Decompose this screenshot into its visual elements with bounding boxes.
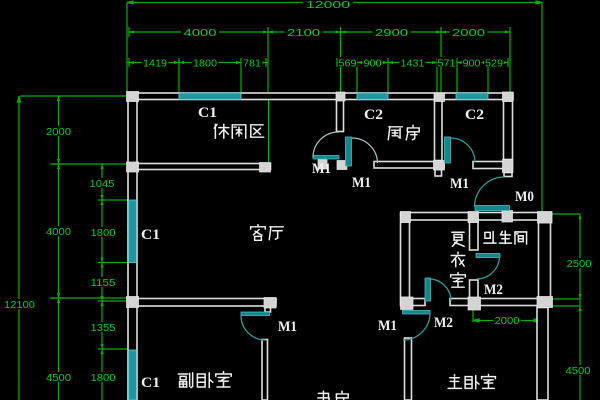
svg-text:1155: 1155	[91, 278, 116, 289]
svg-text:4000: 4000	[46, 227, 71, 238]
svg-text:1800: 1800	[91, 228, 116, 239]
svg-text:1355: 1355	[91, 323, 116, 334]
svg-text:569: 569	[339, 59, 357, 70]
svg-text:C1: C1	[198, 105, 217, 121]
svg-text:781: 781	[243, 59, 261, 70]
svg-text:1800: 1800	[91, 373, 116, 384]
svg-text:M0: M0	[515, 189, 534, 205]
svg-text:M1: M1	[312, 161, 331, 177]
svg-text:4000: 4000	[184, 28, 218, 39]
svg-text:2100: 2100	[287, 28, 321, 39]
svg-text:2500: 2500	[567, 259, 592, 270]
svg-text:1800: 1800	[193, 59, 217, 70]
svg-text:529: 529	[485, 59, 503, 70]
svg-text:900: 900	[463, 59, 481, 70]
svg-text:M2: M2	[434, 315, 453, 331]
svg-text:12000: 12000	[306, 0, 351, 11]
svg-text:4500: 4500	[46, 373, 71, 384]
svg-text:M1: M1	[378, 318, 397, 334]
svg-text:M2: M2	[484, 282, 503, 298]
svg-text:2000: 2000	[495, 316, 520, 327]
svg-text:2000: 2000	[452, 28, 486, 39]
svg-text:C1: C1	[141, 227, 160, 243]
svg-text:M1: M1	[450, 176, 469, 192]
svg-text:1419: 1419	[143, 59, 167, 70]
svg-text:1045: 1045	[90, 179, 115, 190]
svg-text:M1: M1	[352, 175, 371, 191]
svg-text:M1: M1	[278, 319, 297, 335]
svg-text:1431: 1431	[401, 59, 425, 70]
svg-text:900: 900	[364, 59, 382, 70]
svg-text:571: 571	[438, 59, 456, 70]
svg-text:4500: 4500	[566, 366, 591, 377]
svg-text:C1: C1	[141, 375, 160, 391]
svg-text:2000: 2000	[46, 127, 71, 138]
svg-text:12100: 12100	[4, 300, 35, 311]
svg-text:2900: 2900	[375, 28, 409, 39]
svg-text:C2: C2	[465, 107, 484, 123]
svg-text:C2: C2	[364, 107, 383, 123]
